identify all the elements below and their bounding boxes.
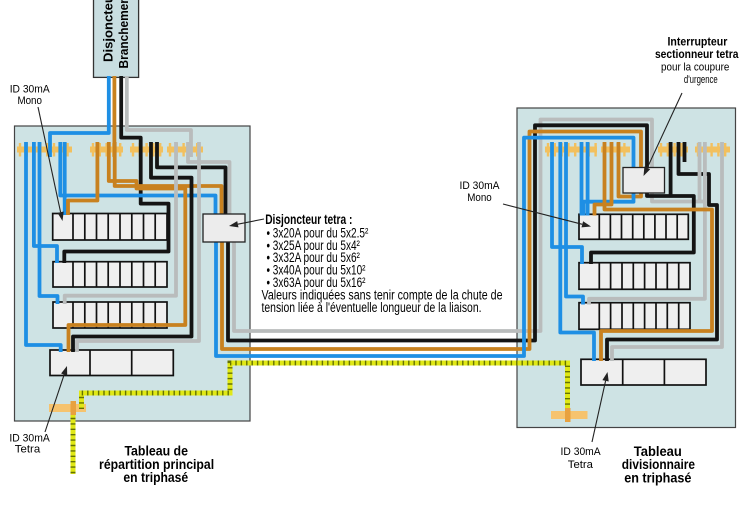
svg-text:pour la coupure: pour la coupure (661, 61, 729, 73)
svg-text:d'urgence: d'urgence (684, 74, 718, 86)
svg-text:Tetra: Tetra (568, 459, 593, 471)
svg-text:Mono: Mono (17, 95, 42, 107)
svg-text:Mono: Mono (467, 192, 492, 204)
svg-text:sectionneur tetra: sectionneur tetra (655, 49, 739, 61)
svg-text:tension liée à l'éventuelle lo: tension liée à l'éventuelle longueur de … (262, 300, 482, 315)
svg-text:en triphasé: en triphasé (123, 469, 188, 485)
svg-text:ID 30mA: ID 30mA (10, 84, 51, 96)
svg-text:Disjoncteur: Disjoncteur (101, 0, 116, 62)
svg-text:ID 30mA: ID 30mA (460, 180, 501, 192)
svg-text:Tetra: Tetra (15, 444, 41, 456)
svg-text:Interrupteur: Interrupteur (667, 37, 727, 49)
svg-text:en triphasé: en triphasé (624, 469, 691, 485)
svg-text:Branchement: Branchement (116, 0, 131, 69)
svg-text:ID 30mA: ID 30mA (561, 446, 602, 458)
